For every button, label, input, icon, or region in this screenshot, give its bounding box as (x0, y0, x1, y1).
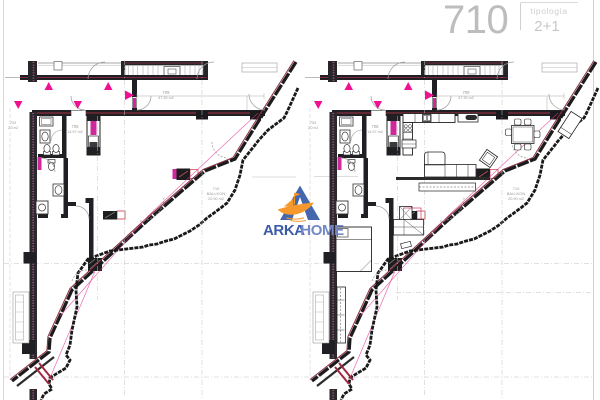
svg-text:HOME: HOME (300, 222, 344, 239)
svg-text:tipologia: tipologia (530, 6, 567, 16)
svg-text:710: 710 (443, 0, 508, 42)
svg-text:ARKA: ARKA (263, 222, 305, 239)
svg-text:2+1: 2+1 (534, 18, 559, 35)
